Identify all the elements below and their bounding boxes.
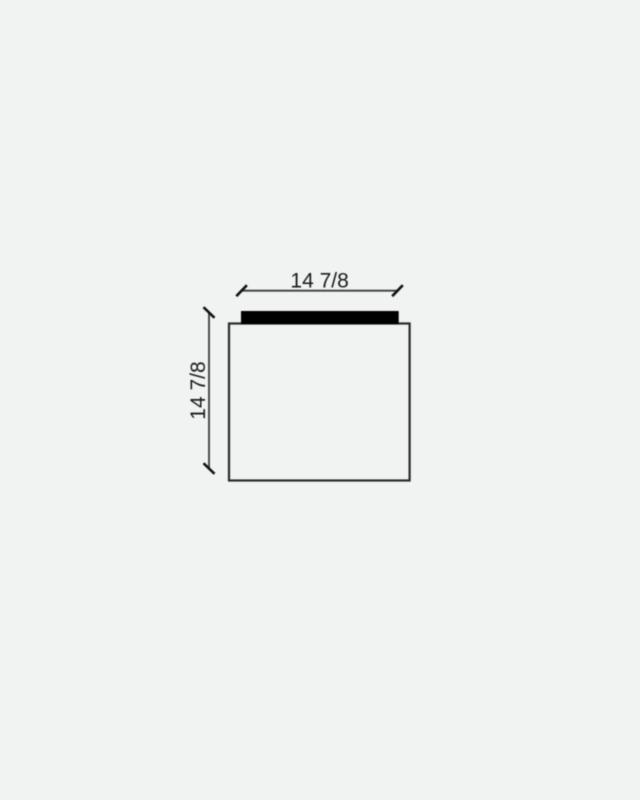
svg-text:14 7/8: 14 7/8 <box>290 270 348 293</box>
svg-text:14 7/8: 14 7/8 <box>187 361 210 419</box>
